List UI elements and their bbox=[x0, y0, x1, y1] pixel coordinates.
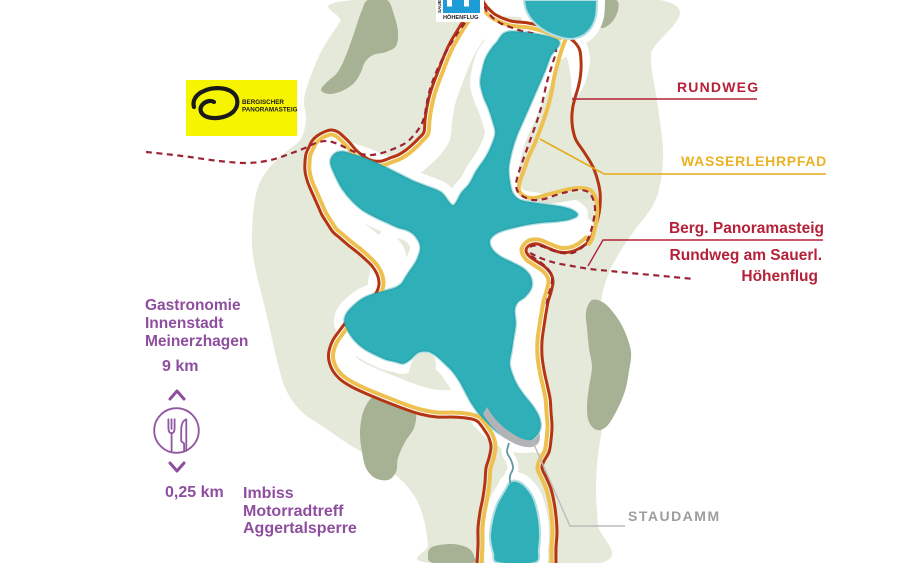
svg-text:HÖHENFLUG: HÖHENFLUG bbox=[443, 14, 478, 21]
svg-text:PANORAMASTEIG: PANORAMASTEIG bbox=[242, 107, 298, 114]
svg-text:Meinerzhagen: Meinerzhagen bbox=[145, 333, 248, 350]
svg-text:Höhenflug: Höhenflug bbox=[741, 268, 818, 285]
svg-text:9 km: 9 km bbox=[162, 358, 198, 375]
svg-text:SAUERL.: SAUERL. bbox=[437, 0, 442, 13]
svg-text:Motorradtreff: Motorradtreff bbox=[243, 503, 344, 520]
svg-text:Imbiss: Imbiss bbox=[243, 485, 294, 502]
svg-text:Aggertalsperre: Aggertalsperre bbox=[243, 520, 357, 537]
svg-text:RUNDWEG: RUNDWEG bbox=[677, 79, 759, 95]
svg-text:Gastronomie: Gastronomie bbox=[145, 297, 241, 314]
svg-text:WASSERLEHRPFAD: WASSERLEHRPFAD bbox=[681, 153, 827, 169]
svg-text:0,25 km: 0,25 km bbox=[165, 484, 224, 501]
svg-text:BERGISCHER: BERGISCHER bbox=[242, 99, 284, 106]
svg-text:STAUDAMM: STAUDAMM bbox=[628, 508, 721, 524]
svg-text:Rundweg am Sauerl.: Rundweg am Sauerl. bbox=[670, 247, 822, 264]
svg-text:Innenstadt: Innenstadt bbox=[145, 315, 223, 332]
svg-text:Berg. Panoramasteig: Berg. Panoramasteig bbox=[669, 220, 824, 237]
